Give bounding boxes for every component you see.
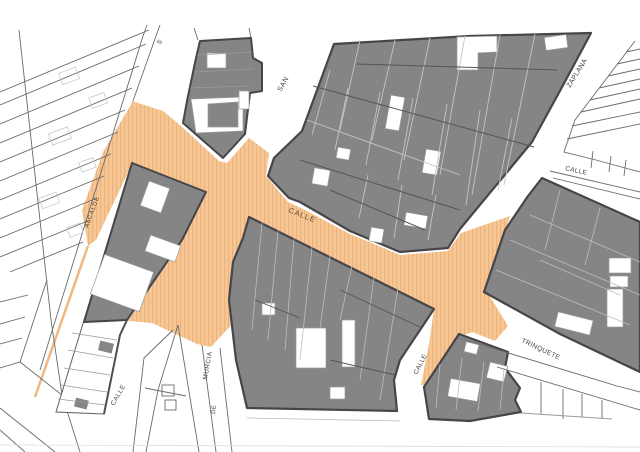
- svg-text:DE: DE: [211, 404, 218, 414]
